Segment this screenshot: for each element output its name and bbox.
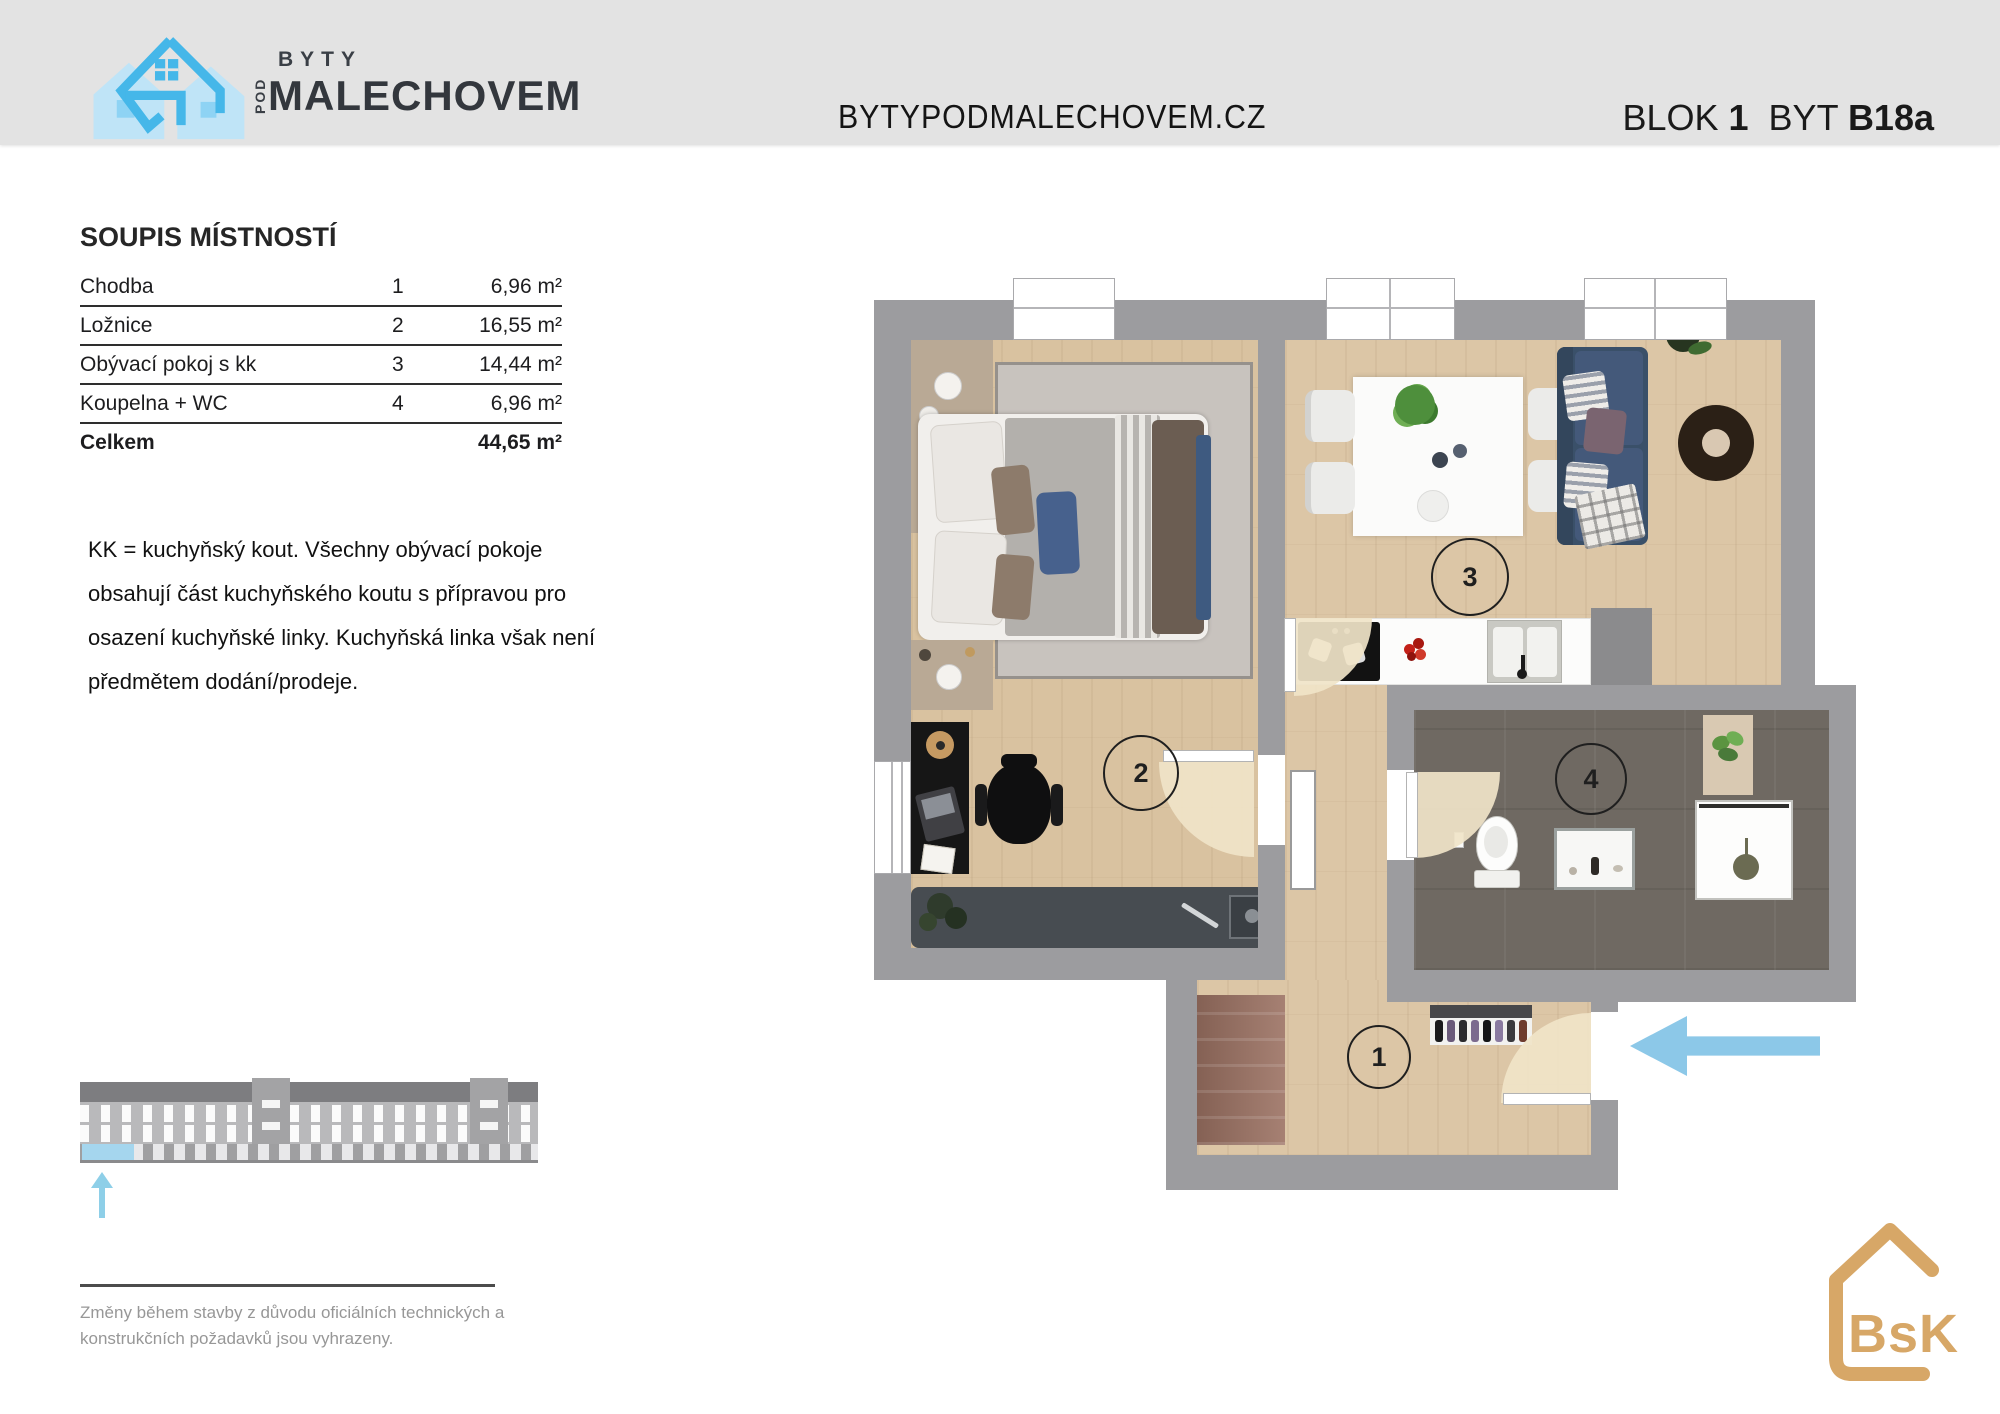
window-icon xyxy=(874,761,911,874)
building-elevation xyxy=(80,1078,538,1168)
shower xyxy=(1695,800,1793,900)
room-area: 6,96 m² xyxy=(452,392,562,416)
floor-plan: 1 2 3 4 xyxy=(870,270,1860,1195)
room-number: 2 xyxy=(386,314,452,338)
unit-location-highlight xyxy=(82,1144,134,1160)
corridor-radiator xyxy=(1290,770,1316,890)
disclaimer-line: Změny během stavby z důvodu oficiálních … xyxy=(80,1300,504,1326)
bedside-lamp-icon xyxy=(936,664,962,690)
room-area: 16,55 m² xyxy=(452,314,562,338)
bed-accent-pillow xyxy=(991,464,1036,536)
room-number: 3 xyxy=(1462,562,1477,593)
blok-number: 1 xyxy=(1729,97,1749,138)
room-number: 4 xyxy=(1583,764,1598,795)
wall-bedroom-right-a xyxy=(1258,340,1285,755)
footer-divider xyxy=(80,1284,495,1287)
decor-item-icon xyxy=(965,647,975,657)
logo-pod-text: POD xyxy=(252,74,268,118)
room-circle-3: 3 xyxy=(1431,538,1509,616)
total-label: Celkem xyxy=(80,431,386,455)
bathroom-plant-icon xyxy=(1708,732,1748,766)
window-icon xyxy=(1584,278,1727,340)
bathroom-vanity xyxy=(1554,828,1635,890)
dining-chair xyxy=(1305,390,1355,442)
entrance-arrow-icon xyxy=(1630,1016,1820,1076)
wall-bedroom-bottom xyxy=(874,948,1285,980)
room-row: Koupelna + WC46,96 m² xyxy=(80,385,562,424)
wall-left xyxy=(874,300,911,980)
wall-entry-right-a xyxy=(1591,1002,1618,1012)
wall-bath-left-a xyxy=(1387,710,1414,770)
room-name: Chodba xyxy=(80,275,386,299)
kitchen-tall-unit xyxy=(1591,608,1652,685)
byt-label: BYT xyxy=(1769,97,1838,138)
room-list-table: Chodba16,96 m²Ložnice216,55 m²Obývací po… xyxy=(80,268,562,461)
bedside-lamp-icon xyxy=(934,372,962,400)
room-name: Obývací pokoj s kk xyxy=(80,353,386,377)
shoe-rack xyxy=(1430,1005,1532,1045)
room-area: 6,96 m² xyxy=(452,275,562,299)
wall-kitchen-bath xyxy=(1387,685,1856,710)
room-row-total: Celkem44,65 m² xyxy=(80,424,562,461)
plate-icon xyxy=(1417,490,1449,522)
header-bar: BYTY POD MALECHOVEM BYTYPODMALECHOVEM.CZ… xyxy=(0,0,2000,145)
bowl-icon xyxy=(1432,452,1448,468)
entrance-door-leaf xyxy=(1503,1093,1591,1105)
wall-bath-bottom xyxy=(1387,970,1856,1002)
wall-entry-bottom xyxy=(1166,1155,1618,1190)
room-row: Chodba16,96 m² xyxy=(80,268,562,307)
kk-note-line: KK = kuchyňský kout. Všechny obývací pok… xyxy=(88,528,595,572)
room-number: 3 xyxy=(386,353,452,377)
kk-note: KK = kuchyňský kout. Všechny obývací pok… xyxy=(88,528,595,704)
wall-right-living xyxy=(1781,300,1815,685)
byt-number: B18a xyxy=(1848,97,1934,138)
bed-accent-pillow xyxy=(991,553,1034,620)
brand-logo: BYTY POD MALECHOVEM xyxy=(252,48,581,118)
elevation-ground-floor xyxy=(80,1144,538,1160)
wall-entry-right-b xyxy=(1591,1100,1618,1155)
kitchen-flowers-icon xyxy=(1404,638,1428,662)
bed-navy-pillow xyxy=(1036,491,1080,575)
room-row: Obývací pokoj s kk314,44 m² xyxy=(80,346,562,385)
wall-bath-left-b xyxy=(1387,860,1414,970)
room-row: Ložnice216,55 m² xyxy=(80,307,562,346)
room-area: 14,44 m² xyxy=(452,353,562,377)
room-name: Koupelna + WC xyxy=(80,392,386,416)
blok-label: BLOK xyxy=(1622,97,1718,138)
elevation-baseline xyxy=(80,1160,538,1163)
unit-title: BLOK 1 BYT B18a xyxy=(1622,97,1934,139)
room-number: 1 xyxy=(386,275,452,299)
disclaimer-line: konstrukčních požadavků jsou vyhrazeny. xyxy=(80,1326,504,1352)
bsk-text: BsK xyxy=(1848,1304,1959,1364)
room-list-title: SOUPIS MÍSTNOSTÍ xyxy=(80,222,337,253)
website-url: BYTYPODMALECHOVEM.CZ xyxy=(838,98,1266,136)
bsk-logo: BsK xyxy=(1820,1218,1960,1393)
room-circle-4: 4 xyxy=(1555,743,1627,815)
dining-chair xyxy=(1305,462,1355,514)
kk-note-line: předmětem dodání/prodeje. xyxy=(88,660,595,704)
bedroom-wardrobe xyxy=(911,887,1265,948)
wall-bath-right xyxy=(1829,685,1856,1002)
room-circle-1: 1 xyxy=(1347,1025,1411,1089)
location-arrow-icon xyxy=(88,1172,116,1218)
table-plant-icon xyxy=(1395,385,1435,425)
coffee-table-center xyxy=(1702,429,1730,457)
entry-wardrobe xyxy=(1197,995,1285,1145)
bowl-icon xyxy=(1453,444,1467,458)
notebook-icon xyxy=(920,844,955,874)
room-number: 1 xyxy=(1371,1042,1386,1073)
disclaimer-text: Změny během stavby z důvodu oficiálních … xyxy=(80,1300,504,1352)
bed-foot-throw xyxy=(1196,435,1211,620)
room-number: 2 xyxy=(1133,758,1148,789)
desk-lamp-icon xyxy=(936,741,945,750)
bathroom-door-leaf xyxy=(1406,772,1418,858)
office-chair xyxy=(975,758,1063,850)
brand-house-icon xyxy=(82,33,254,141)
window-icon xyxy=(1013,278,1115,340)
decor-item-icon xyxy=(919,649,931,661)
logo-byty-text: BYTY xyxy=(278,48,581,72)
window-icon xyxy=(1326,278,1455,340)
kk-note-line: obsahují část kuchyňského koutu s přípra… xyxy=(88,572,595,616)
kk-note-line: osazení kuchyňské linky. Kuchyňská linka… xyxy=(88,616,595,660)
total-area: 44,65 m² xyxy=(452,431,562,455)
logo-name-text: MALECHOVEM xyxy=(268,74,581,118)
room-name: Ložnice xyxy=(80,314,386,338)
room-circle-2: 2 xyxy=(1103,735,1179,811)
wall-bedroom-right-b xyxy=(1258,845,1285,948)
sofa xyxy=(1557,347,1648,545)
kitchen-sink xyxy=(1487,620,1562,683)
room-number: 4 xyxy=(386,392,452,416)
living-door-leaf xyxy=(1284,618,1296,692)
